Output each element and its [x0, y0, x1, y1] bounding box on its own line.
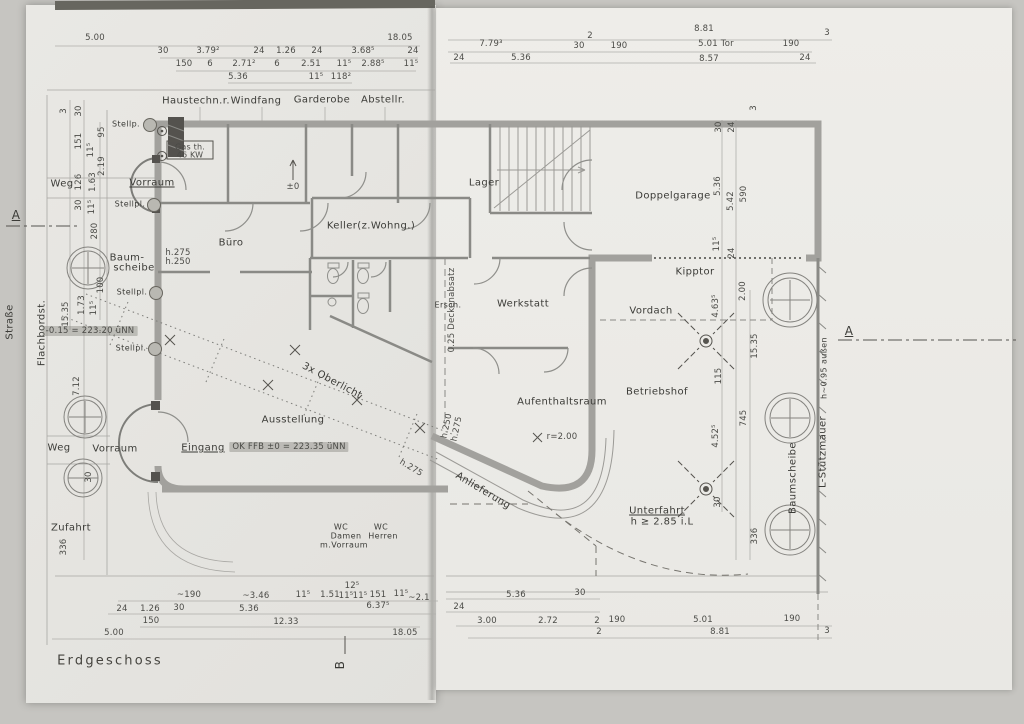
anno-h250-buero: h.250 — [165, 257, 190, 267]
dim-tr-6: 190 — [783, 39, 800, 49]
dim-lv-4: 11⁵ — [86, 143, 96, 158]
dim-bl-1: ~3.46 — [242, 591, 269, 601]
floor-plan-page: Haustechn.r. Windfang Garderobe Abstellr… — [0, 0, 1024, 724]
dim-rv-7: 24 — [727, 247, 737, 258]
dim-tl-6: 24 — [311, 46, 322, 56]
label-wc-herren-1: WC — [374, 523, 388, 532]
dim-tr-3: 30 — [573, 41, 584, 51]
label-wc-herren-2: Herren — [368, 532, 398, 541]
dim-tr-0: 8.81 — [694, 24, 714, 34]
dim-rv-0: 3 — [749, 105, 759, 111]
stairs — [494, 126, 590, 211]
dim-lv-6: 126 — [74, 174, 84, 191]
dim-rv-15: 336 — [750, 528, 760, 545]
dim-tl-5: 1.26 — [276, 46, 296, 56]
dim-lv-3: 95 — [97, 126, 107, 137]
dim-tl-9: 150 — [176, 59, 193, 69]
dim-bl-9: ~2.1 — [408, 593, 429, 603]
label-stuetzmauer: L-Stützmauer — [818, 416, 829, 488]
dim-tr-11: 24 — [799, 53, 810, 63]
dim-lv-11: 100 — [96, 277, 106, 294]
dim-bl-8: 11⁵ — [394, 589, 409, 599]
dim-tr-10: 8.57 — [699, 54, 719, 64]
dim-br-0: 5.36 — [506, 590, 526, 600]
anno-level-ffb: OK FFB ±0 = 223.35 üNN — [229, 442, 348, 452]
page-title: Erdgeschoss — [57, 654, 163, 669]
label-wc-damen-2: Damen — [331, 532, 362, 541]
dim-rv-1: 30 — [714, 121, 724, 132]
room-label-haustechnik: Haustechn.r. — [162, 96, 230, 107]
dim-bl-17: 5.00 — [104, 628, 124, 638]
room-label-ausstellung: Ausstellung — [262, 415, 325, 426]
dim-rv-8: 2.00 — [738, 281, 748, 301]
dim-br-11: 3 — [824, 626, 830, 636]
dim-lv-8: 30 — [74, 199, 84, 210]
room-label-keller: Keller(z.Wohng.) — [327, 221, 415, 232]
dim-rv-3: 5.36 — [713, 176, 723, 196]
dim-br-3: 3.00 — [477, 616, 497, 626]
dim-tl-14: 11⁵ — [337, 59, 352, 69]
dim-bl-3: 1.51 — [320, 590, 340, 600]
label-eingang: Eingang — [181, 443, 224, 454]
label-stellplatz-2: Stellpl. — [115, 200, 146, 209]
dim-br-10: 8.81 — [710, 627, 730, 637]
dim-rv-11: 115 — [714, 368, 724, 385]
dim-rv-13: 4.52⁵ — [711, 424, 721, 447]
dim-br-2: 24 — [453, 602, 464, 612]
dim-bl-15: 150 — [143, 616, 160, 626]
label-vordach: Vordach — [629, 306, 672, 317]
dim-lv-2: 151 — [74, 133, 84, 150]
dim-lv-17: 336 — [59, 539, 69, 556]
dim-tl-2: 30 — [157, 46, 168, 56]
dim-tl-13: 2.51 — [301, 59, 321, 69]
label-wc-damen-1: WC — [334, 523, 348, 532]
dim-br-1: 30 — [574, 588, 585, 598]
dim-rv-14: 30 — [713, 496, 723, 507]
dim-bl-5: 11⁵ — [339, 591, 354, 601]
dim-tl-12: 6 — [274, 59, 280, 69]
section-marker-b: B — [333, 661, 347, 670]
dim-bl-16: 12.33 — [273, 617, 298, 627]
dim-br-8: 190 — [784, 614, 801, 624]
wc-fixtures — [328, 263, 370, 314]
room-label-vorraum-entry: Vorraum — [92, 444, 137, 455]
dim-tl-15: 2.88⁵ — [361, 59, 384, 69]
dim-bl-0: ~190 — [177, 590, 201, 600]
tree-circles — [64, 247, 817, 555]
dim-rv-12: 745 — [739, 410, 749, 427]
dim-tl-11: 2.71² — [232, 59, 255, 69]
dim-br-6: 190 — [609, 615, 626, 625]
section-marker-a-right: A — [845, 324, 854, 338]
dim-lv-5: 2.19 — [97, 156, 107, 176]
room-label-vorraum-top: Vorraum — [129, 178, 174, 189]
label-stellplatz-4: Stellpl. — [116, 344, 147, 353]
dim-bl-2: 11⁵ — [296, 590, 311, 600]
dim-tr-4: 190 — [611, 41, 628, 51]
room-label-aufenthaltsraum: Aufenthaltsraum — [517, 397, 607, 408]
label-betriebshof: Betriebshof — [626, 387, 688, 398]
dim-tl-4: 24 — [253, 46, 264, 56]
dim-bl-12: 30 — [173, 603, 184, 613]
room-label-windfang: Windfang — [231, 96, 282, 107]
label-zufahrt: Zufahrt — [51, 523, 91, 534]
dim-lv-13: 11⁵ — [89, 301, 99, 316]
dim-lv-9: 11⁵ — [87, 200, 97, 215]
dim-lv-7: 1.63 — [88, 172, 98, 192]
dim-rv-2: 24 — [727, 121, 737, 132]
dim-bl-6: 11⁵ — [353, 591, 368, 601]
anno-deckenabsatz: 0.25 Deckenabsatz — [447, 268, 457, 353]
dim-lv-1: 30 — [74, 105, 84, 116]
dim-lv-14: 15.35 — [61, 301, 71, 326]
dim-tl-3: 3.79² — [196, 46, 219, 56]
dim-tl-8: 24 — [407, 46, 418, 56]
label-unterfahrt-hoehe: h ≥ 2.85 i.L — [631, 517, 694, 528]
label-weg-top: Weg — [50, 179, 73, 190]
dim-bl-13: 5.36 — [239, 604, 259, 614]
room-label-garderobe: Garderobe — [294, 95, 350, 106]
dim-tl-0: 5.00 — [85, 33, 105, 43]
room-label-werkstatt: Werkstatt — [497, 299, 549, 310]
dim-lv-10: 280 — [90, 223, 100, 240]
dim-tl-17: 5.36 — [228, 72, 248, 82]
dim-br-4: 2.72 — [538, 616, 558, 626]
anno-level-zero: ±0 — [287, 182, 300, 192]
dim-tr-2: 2 — [587, 31, 593, 41]
section-marker-a-left: A — [12, 208, 21, 222]
drain-symbols — [678, 313, 734, 517]
dim-bl-7: 151 — [370, 590, 387, 600]
dim-tl-1: 18.05 — [387, 33, 412, 43]
dim-lv-15: 7.12 — [72, 376, 82, 396]
dim-tr-9: 5.36 — [511, 53, 531, 63]
label-strasse: Straße — [5, 304, 16, 339]
dim-rv-5: 590 — [739, 186, 749, 203]
dim-rv-6: 11⁵ — [712, 237, 722, 252]
label-aussen-hoehe: h~0.95 außen — [820, 337, 829, 399]
anno-gas-line-2: 46 KW — [177, 151, 204, 160]
dim-tl-7: 3.68⁵ — [351, 46, 374, 56]
dim-lv-16: 30 — [84, 471, 94, 482]
label-stellplatz-3: Stellpl. — [117, 288, 148, 297]
dim-bl-18: 18.05 — [392, 628, 417, 638]
label-wc-damen-3: m.Vorraum — [320, 541, 368, 550]
dim-br-5: 2 — [594, 616, 600, 626]
label-baumscheibe-left-2: scheibe — [113, 263, 154, 274]
label-baumscheibe-right: Baumscheibe — [788, 442, 799, 514]
dim-bl-10: 24 — [116, 604, 127, 614]
dim-lv-0: 3 — [59, 108, 69, 114]
label-stellplatz-1: Stellp. — [112, 120, 140, 129]
dim-tl-18: 11⁵ — [309, 72, 324, 82]
label-unterfahrt: Unterfahrt — [629, 506, 685, 517]
dim-tl-19: 118² — [331, 72, 351, 82]
room-label-buero: Büro — [219, 238, 244, 249]
anno-radius: r=2.00 — [547, 432, 578, 442]
dim-tr-5: 5.01 Tor — [698, 39, 734, 49]
room-label-lager: Lager — [469, 178, 499, 189]
site-lines — [47, 90, 828, 645]
label-kipptor: Kipptor — [676, 267, 715, 278]
room-label-doppelgarage: Doppelgarage — [635, 191, 710, 202]
dim-rv-10: 15.35 — [750, 333, 760, 358]
dim-tr-1: 7.79³ — [479, 39, 502, 49]
dim-lv-12: 1.73 — [77, 295, 87, 315]
dim-tl-10: 6 — [207, 59, 213, 69]
dim-tr-8: 24 — [453, 53, 464, 63]
dim-br-9: 2 — [596, 627, 602, 637]
dim-bl-11: 1.26 — [140, 604, 160, 614]
room-label-abstellraum: Abstellr. — [361, 95, 405, 106]
dim-bl-4: 12⁵ — [345, 581, 360, 591]
dim-bl-14: 6.37⁵ — [366, 601, 389, 611]
dim-br-7: 5.01 — [693, 615, 713, 625]
dim-tr-7: 3 — [824, 28, 830, 38]
dim-rv-9: 4.63⁵ — [711, 294, 721, 317]
dim-tl-16: 11⁵ — [404, 59, 419, 69]
dim-rv-4: 5.42 — [726, 191, 736, 211]
anno-level-street: -0.15 = 223.20 üNN — [43, 326, 138, 336]
label-weg-bottom: Weg — [47, 443, 70, 454]
